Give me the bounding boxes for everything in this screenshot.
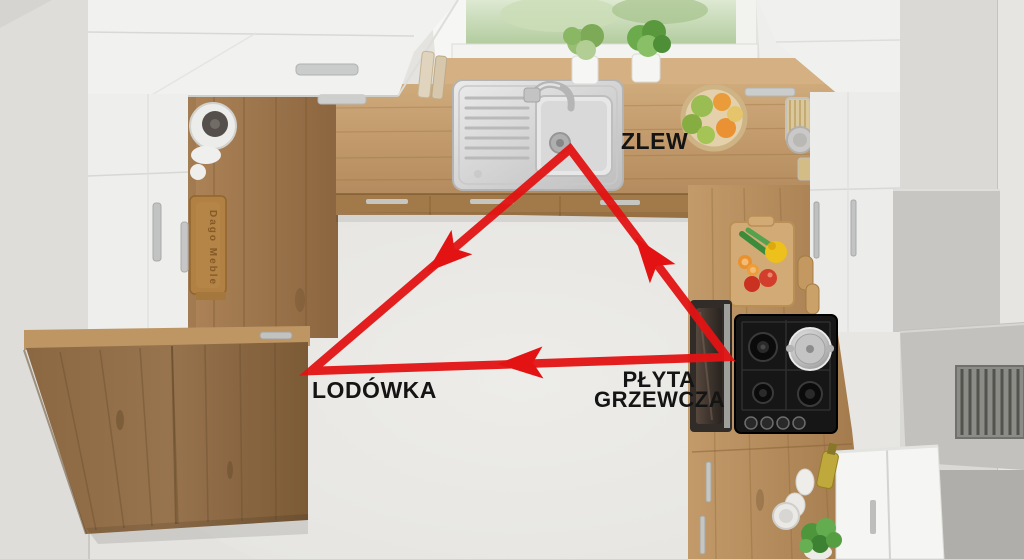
hob-label-line2: GRZEWCZA <box>594 390 724 410</box>
vignette <box>0 0 1024 559</box>
fridge-label: LODÓWKA <box>312 379 437 402</box>
hob-label: PŁYTA GRZEWCZA <box>594 370 724 410</box>
board-brand-text: Dago Meble <box>207 210 218 286</box>
kitchen-work-triangle-photo: ZLEW LODÓWKA PŁYTA GRZEWCZA Dago Meble <box>0 0 1024 559</box>
kitchen-photo <box>0 0 1024 559</box>
sink-label: ZLEW <box>621 130 688 153</box>
